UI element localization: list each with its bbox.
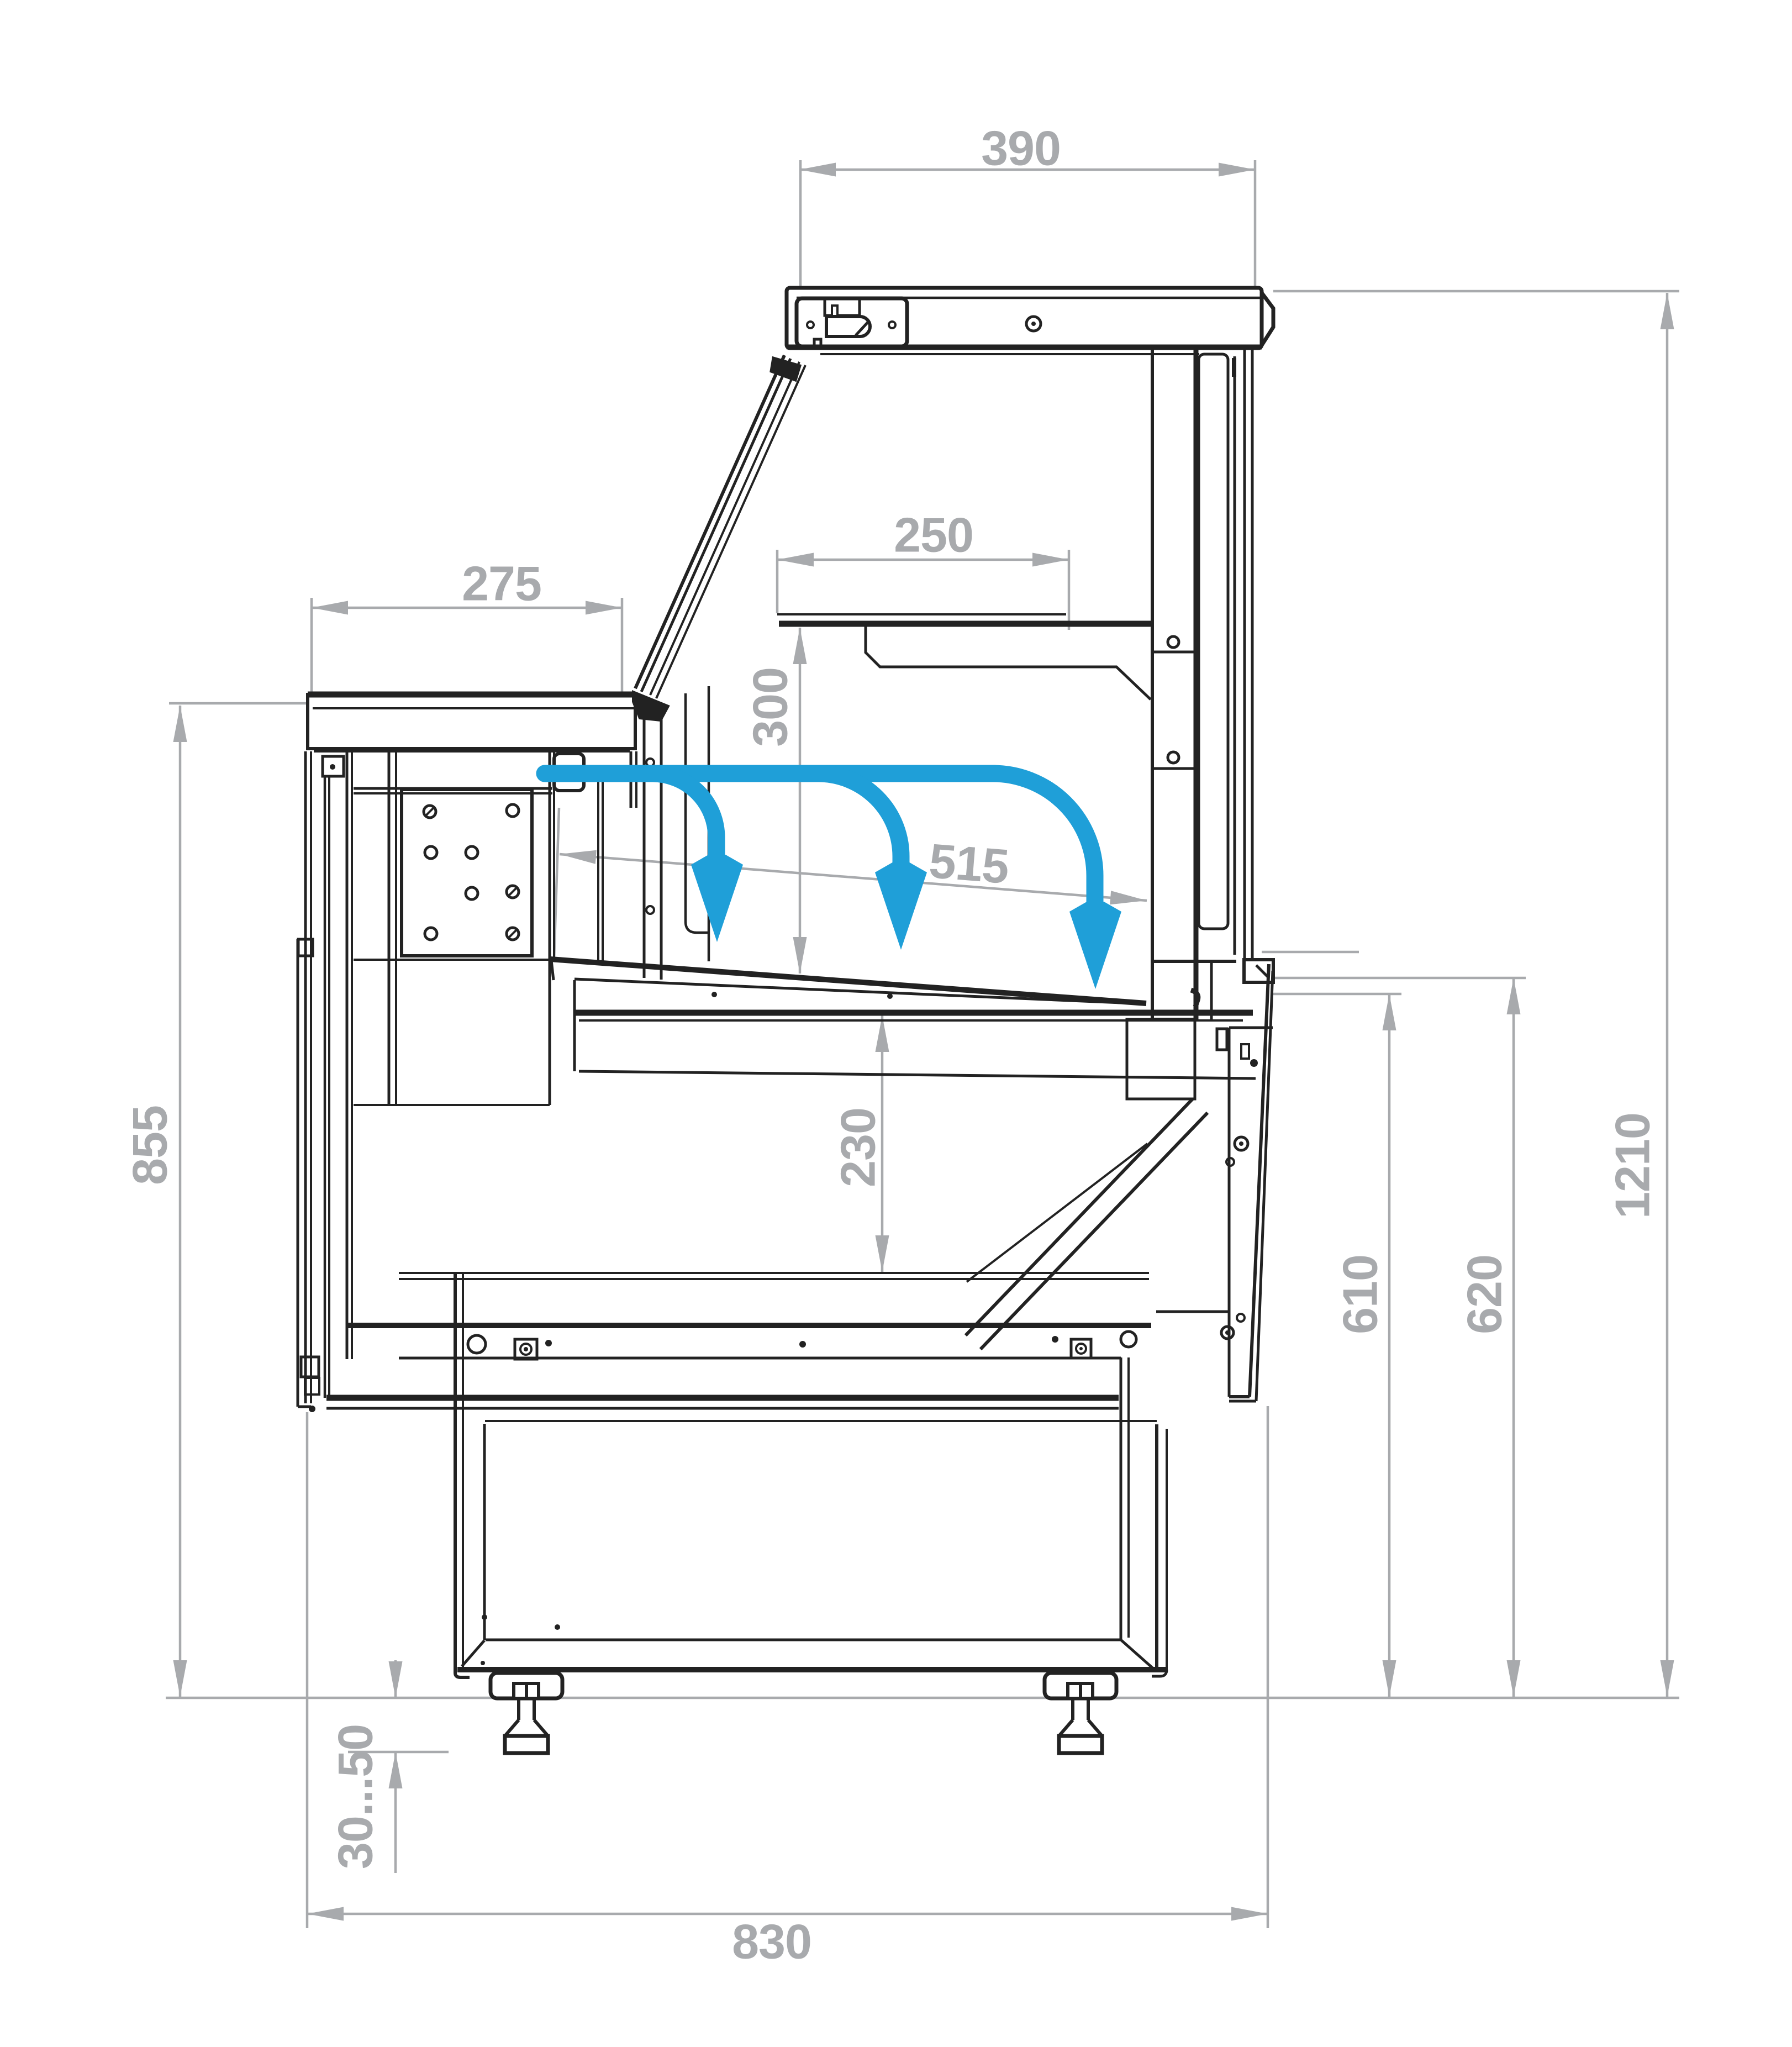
svg-text:230: 230 — [831, 1108, 886, 1187]
svg-text:855: 855 — [123, 1106, 177, 1185]
svg-text:275: 275 — [462, 556, 541, 611]
svg-text:390: 390 — [981, 121, 1061, 176]
svg-text:620: 620 — [1457, 1255, 1512, 1334]
svg-text:250: 250 — [894, 508, 973, 562]
svg-text:1210: 1210 — [1605, 1113, 1660, 1219]
svg-text:300: 300 — [743, 667, 798, 747]
svg-text:515: 515 — [927, 833, 1010, 894]
svg-text:610: 610 — [1333, 1255, 1388, 1334]
svg-text:830: 830 — [732, 1914, 811, 1969]
svg-text:30...50: 30...50 — [328, 1724, 383, 1869]
